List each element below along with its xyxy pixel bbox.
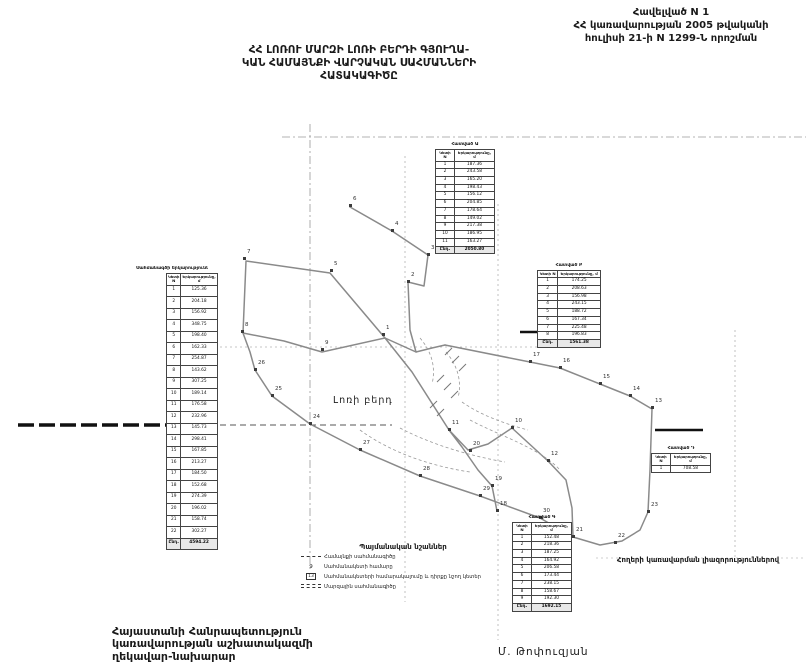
boundary-point-marker xyxy=(391,229,394,232)
table-row: 11176.58 xyxy=(167,400,218,412)
coordinate-table: Կետի NԵրկարությունը, մ1125.362204.183156… xyxy=(166,273,218,550)
boundary-point-number: 12 xyxy=(551,452,558,458)
table-cell: 7 xyxy=(538,324,558,332)
boundary-point-marker xyxy=(479,494,482,497)
boundary-point-number: 25 xyxy=(275,387,282,393)
boundary-point-marker xyxy=(614,541,617,544)
table-row: 3165.20 xyxy=(436,177,495,185)
table-row: 2218.36 xyxy=(513,542,572,550)
table-row: 16213.27 xyxy=(167,458,218,470)
table-row: 10186.95 xyxy=(436,231,495,239)
table-row: 6204.85 xyxy=(436,200,495,208)
table-row: 8143.62 xyxy=(167,366,218,378)
table-cell: 11 xyxy=(436,238,455,246)
table-cell: 254.87 xyxy=(181,354,217,366)
table-cell: 218.36 xyxy=(531,542,571,550)
length-table-left: Սահմանագծի երկարություններըԿետի NԵրկարու… xyxy=(136,266,208,550)
table-cell: 3 xyxy=(436,177,455,185)
boundary-point-number: 5 xyxy=(334,262,338,268)
table-cell: 8 xyxy=(167,366,181,378)
table-row: 1174.25 xyxy=(538,278,601,286)
legend-item-region-line: Մարզային սահմանագիծը xyxy=(298,584,508,590)
table-header-cell: Կետի N xyxy=(167,274,181,286)
table-cell: 22 xyxy=(167,527,181,539)
boundary-point-number: 22 xyxy=(618,534,625,540)
signature-line-2: կառավարության աշխատակազմի xyxy=(112,638,313,650)
table-cell: 2 xyxy=(538,286,558,294)
boundary-point-number: 10 xyxy=(515,419,522,425)
title-line-1: ՀՀ ԼՈՌՈՒ ՄԱՐԶԻ ԼՈՌԻ ԲԵՐԴԻ ԳՅՈՒՂԱ- xyxy=(228,44,490,57)
table-row: 5156.12 xyxy=(436,192,495,200)
boundary-point-marker xyxy=(407,280,410,283)
table-row: 11163.27 xyxy=(436,238,495,246)
table-cell: 5 xyxy=(167,331,181,343)
table-cell: 6 xyxy=(436,200,455,208)
table-cell: 1 xyxy=(513,534,532,542)
appendix-line-2: ՀՀ կառավարության 2005 թվականի xyxy=(540,19,802,32)
table-cell: 1 xyxy=(538,278,558,286)
table-header-cell: Երկարությունը, մ xyxy=(558,271,601,278)
table-cell: 189.14 xyxy=(181,389,217,401)
table-cell: 6 xyxy=(513,573,532,581)
table-row: 6167.34 xyxy=(538,316,601,324)
coordinate-table: Կետի NԵրկարությունը, մ1174.252208.633156… xyxy=(537,270,601,348)
table-row: 13145.73 xyxy=(167,423,218,435)
boundary-point-marker xyxy=(469,449,472,452)
boundary-point-marker xyxy=(254,368,257,371)
table-row: 4243.15 xyxy=(538,301,601,309)
table-cell: 184.50 xyxy=(181,469,217,481)
boundary-point-marker xyxy=(629,394,632,397)
table-cell: 2 xyxy=(167,297,181,309)
table-header-cell: Կետի N xyxy=(436,150,455,162)
table-row: 2243.58 xyxy=(436,169,495,177)
signature-line-3: ղեկավար-նախարար xyxy=(112,651,313,663)
boundary-point-number: 9 xyxy=(325,341,329,347)
boundary-point-marker xyxy=(647,510,650,513)
table-cell: 206.58 xyxy=(531,565,571,573)
table-cell: 198.40 xyxy=(181,331,217,343)
table-cell: 187.36 xyxy=(454,161,494,169)
region-line-icon xyxy=(298,584,324,590)
table-cell: 2 xyxy=(513,542,532,550)
legend-item-point-number: 9 Սահմանակետի համարը xyxy=(298,564,508,570)
right-note: Հողերի կառավարման լիազորություններով xyxy=(592,556,804,564)
table-row: 9217.38 xyxy=(436,223,495,231)
legend-item-label: Սահմանակետի համարը xyxy=(324,564,393,570)
table-header-cell: Կետի N xyxy=(538,271,558,278)
boundary-point-marker xyxy=(547,459,550,462)
table-row: 15167.85 xyxy=(167,446,218,458)
boundary-point-number: 8 xyxy=(245,323,249,329)
length-table-top: Հատված ԱԿետի NԵրկարությունը, մ1187.36224… xyxy=(432,142,498,254)
table-row: 1187.36 xyxy=(436,161,495,169)
table-cell: 9 xyxy=(167,377,181,389)
table-row: 7238.15 xyxy=(513,580,572,588)
boundary-point-number: 16 xyxy=(563,359,570,365)
table-title: Հատված Բ xyxy=(534,263,604,268)
table-row: 3187.25 xyxy=(513,550,572,558)
table-cell: 164.92 xyxy=(531,557,571,565)
boundary-point-number: 24 xyxy=(313,415,320,421)
table-cell: 18 xyxy=(167,481,181,493)
table-cell: 152.48 xyxy=(531,534,571,542)
table-cell: 163.27 xyxy=(454,238,494,246)
table-cell: 5 xyxy=(538,309,558,317)
table-cell: 7 xyxy=(167,354,181,366)
table-header-cell: Երկարությունը, մ xyxy=(531,523,571,535)
table-cell: 11 xyxy=(167,400,181,412)
table-row: 20196.02 xyxy=(167,504,218,516)
table-header-cell: Կետի N xyxy=(652,454,671,466)
boundary-point-number: 21 xyxy=(576,528,583,534)
legend-item-label: Սահմանակետերի համարակալումը և դիրքը նշող… xyxy=(324,574,481,580)
table-cell: 167.85 xyxy=(181,446,217,458)
table-row: 4164.92 xyxy=(513,557,572,565)
boundary-point-marker xyxy=(448,428,451,431)
table-row: 19274.39 xyxy=(167,492,218,504)
table-header-cell: Կետի N xyxy=(513,523,532,535)
table-cell: 14 xyxy=(167,435,181,447)
table-row: 18152.68 xyxy=(167,481,218,493)
table-cell: 176.58 xyxy=(181,400,217,412)
table-cell: 149.02 xyxy=(454,215,494,223)
table-total-cell: 1692.15 xyxy=(531,604,571,612)
legend-item-boundary: Համայնքի սահմանագիծը xyxy=(298,554,508,560)
table-cell: 167.34 xyxy=(558,316,601,324)
table-title: Հատված Ա xyxy=(432,142,498,147)
table-total-cell: 1561.38 xyxy=(558,340,601,348)
table-cell: 19 xyxy=(167,492,181,504)
scanned-map-document: { "appendix": { "line1": "Հավելված N 1",… xyxy=(0,0,806,665)
boundary-point-marker xyxy=(349,204,352,207)
table-row: 6162.33 xyxy=(167,343,218,355)
table-cell: 9 xyxy=(513,596,532,604)
boundary-point-number: 1 xyxy=(386,326,390,332)
boundary-point-marker xyxy=(651,406,654,409)
table-total-cell: Ընդ. xyxy=(513,604,532,612)
boundary-point-marker xyxy=(330,269,333,272)
length-table-small: Հատված ԴԿետի NԵրկարությունը, մ1708.58 xyxy=(648,446,714,473)
table-cell: 2 xyxy=(436,169,455,177)
table-cell: 178.64 xyxy=(454,207,494,215)
table-cell: 217.38 xyxy=(454,223,494,231)
table-total-cell: Ընդ. xyxy=(167,538,181,550)
table-cell: 162.33 xyxy=(181,343,217,355)
table-cell: 238.15 xyxy=(531,580,571,588)
table-cell: 213.27 xyxy=(181,458,217,470)
table-total-row: Ընդ.2050.80 xyxy=(436,246,495,254)
table-row: 22302.27 xyxy=(167,527,218,539)
table-cell: 225.48 xyxy=(558,324,601,332)
table-row: 3156.98 xyxy=(538,293,601,301)
boundary-point-number: 23 xyxy=(651,503,658,509)
table-cell: 10 xyxy=(167,389,181,401)
point-number-icon: 9 xyxy=(298,564,324,570)
table-cell: 158.74 xyxy=(181,515,217,527)
table-cell: 348.75 xyxy=(181,320,217,332)
table-row: 17184.50 xyxy=(167,469,218,481)
legend-item-label: Համայնքի սահմանագիծը xyxy=(324,554,396,560)
table-title: Հատված Գ xyxy=(508,515,576,520)
table-cell: 9 xyxy=(436,223,455,231)
table-cell: 156.98 xyxy=(558,293,601,301)
boundary-point-number: 4 xyxy=(395,222,399,228)
legend-item-point-box: 13 Սահմանակետերի համարակալումը և դիրքը ն… xyxy=(298,573,508,580)
table-total-row: Ընդ.1561.38 xyxy=(538,340,601,348)
table-cell: 198.43 xyxy=(454,184,494,192)
table-row: 4198.43 xyxy=(436,184,495,192)
table-cell: 143.62 xyxy=(181,366,217,378)
boundary-point-number: 27 xyxy=(363,441,370,447)
table-row: 8196.83 xyxy=(538,332,601,340)
table-row: 9307.25 xyxy=(167,377,218,389)
table-row: 12232.96 xyxy=(167,412,218,424)
table-row: 10189.14 xyxy=(167,389,218,401)
table-row: 6173.44 xyxy=(513,573,572,581)
table-cell: 16 xyxy=(167,458,181,470)
boundary-point-marker xyxy=(511,426,514,429)
length-table-bottom: Հատված ԳԿետի NԵրկարությունը, մ1152.48221… xyxy=(508,515,576,612)
length-table-right: Հատված ԲԿետի NԵրկարությունը, մ1174.25220… xyxy=(534,263,604,348)
table-row: 2208.63 xyxy=(538,286,601,294)
table-total-cell: 4594.22 xyxy=(181,538,217,550)
table-row: 9192.30 xyxy=(513,596,572,604)
table-title: Սահմանագծի երկարությունները xyxy=(136,266,208,271)
boundary-point-marker xyxy=(382,333,385,336)
boundary-point-number: 30 xyxy=(543,509,550,515)
boundary-point-number: 18 xyxy=(500,502,507,508)
table-cell: 10 xyxy=(436,231,455,239)
table-cell: 232.96 xyxy=(181,412,217,424)
coordinate-table: Կետի NԵրկարությունը, մ1708.58 xyxy=(651,453,711,473)
boundary-point-marker xyxy=(243,257,246,260)
table-total-cell: Ընդ. xyxy=(538,340,558,348)
legend: Պայմանական նշաններ Համայնքի սահմանագիծը … xyxy=(298,543,508,593)
boundary-point-number: 20 xyxy=(473,442,480,448)
boundary-point-marker xyxy=(359,448,362,451)
table-cell: 3 xyxy=(513,550,532,558)
boundary-point-marker xyxy=(491,484,494,487)
table-cell: 4 xyxy=(513,557,532,565)
table-row: 5188.72 xyxy=(538,309,601,317)
table-cell: 187.25 xyxy=(531,550,571,558)
boundary-point-marker xyxy=(496,509,499,512)
table-row: 4348.75 xyxy=(167,320,218,332)
table-row: 7178.64 xyxy=(436,207,495,215)
table-cell: 192.30 xyxy=(531,596,571,604)
table-cell: 6 xyxy=(167,343,181,355)
table-row: 3156.92 xyxy=(167,308,218,320)
boundary-point-marker xyxy=(321,348,324,351)
boundary-point-number: 19 xyxy=(495,477,502,483)
title-line-2: ԿԱՆ ՀԱՄԱՅՆՔԻ ՎԱՐՉԱԿԱՆ ՍԱՀՄԱՆՆԵՐԻ xyxy=(228,57,490,70)
boundary-point-number: 13 xyxy=(655,399,662,405)
table-total-cell: 2050.80 xyxy=(454,246,494,254)
table-cell: 1 xyxy=(167,285,181,297)
table-cell: 17 xyxy=(167,469,181,481)
table-cell: 708.58 xyxy=(670,465,710,473)
boundary-point-marker xyxy=(271,394,274,397)
table-cell: 7 xyxy=(513,580,532,588)
title-line-3: ՀԱՏԱԿԱԳԻԾԸ xyxy=(228,70,490,83)
boundary-point-marker xyxy=(559,366,562,369)
table-header-cell: Երկարությունը, մ xyxy=(181,274,217,286)
boundary-point-number: 6 xyxy=(353,197,357,203)
table-cell: 1 xyxy=(652,465,671,473)
signature-left-block: Հայաստանի Հանրապետություն կառավարության … xyxy=(112,626,313,663)
table-row: 5206.58 xyxy=(513,565,572,573)
appendix-line-3: հուլիսի 21-ի N 1299-Ն որոշման xyxy=(540,32,802,45)
legend-item-label: Մարզային սահմանագիծը xyxy=(324,584,396,590)
table-cell: 3 xyxy=(538,293,558,301)
boundary-point-marker xyxy=(419,474,422,477)
table-row: 7225.48 xyxy=(538,324,601,332)
boundary-point-number: 11 xyxy=(452,421,459,427)
coordinate-table: Կետի NԵրկարությունը, մ1187.362243.583165… xyxy=(435,149,495,254)
table-cell: 145.73 xyxy=(181,423,217,435)
coordinate-table: Կետի NԵրկարությունը, մ1152.482218.363187… xyxy=(512,522,572,612)
document-title: ՀՀ ԼՈՌՈՒ ՄԱՐԶԻ ԼՈՌԻ ԲԵՐԴԻ ԳՅՈՒՂԱ- ԿԱՆ ՀԱ… xyxy=(228,44,490,83)
table-row: 14298.41 xyxy=(167,435,218,447)
boundary-point-number: 2 xyxy=(411,273,415,279)
settlement-label: Լոռի բերդ xyxy=(333,395,393,406)
table-cell: 302.27 xyxy=(181,527,217,539)
table-row: 7254.87 xyxy=(167,354,218,366)
appendix-line-1: Հավելված N 1 xyxy=(540,6,802,19)
table-cell: 274.39 xyxy=(181,492,217,504)
point-box-icon: 13 xyxy=(298,573,324,580)
table-cell: 1 xyxy=(436,161,455,169)
boundary-point-number: 29 xyxy=(483,487,490,493)
table-row: 8158.67 xyxy=(513,588,572,596)
table-header-cell: Երկարությունը, մ xyxy=(670,454,710,466)
table-cell: 4 xyxy=(538,301,558,309)
table-total-cell: Ընդ. xyxy=(436,246,455,254)
boundary-point-marker xyxy=(599,382,602,385)
table-cell: 188.72 xyxy=(558,309,601,317)
table-cell: 125.36 xyxy=(181,285,217,297)
legend-title: Պայմանական նշաններ xyxy=(298,543,508,551)
table-cell: 165.20 xyxy=(454,177,494,185)
boundary-point-marker xyxy=(241,330,244,333)
table-cell: 298.41 xyxy=(181,435,217,447)
boundary-point-marker xyxy=(427,253,430,256)
table-cell: 13 xyxy=(167,423,181,435)
table-row: 2204.18 xyxy=(167,297,218,309)
table-cell: 3 xyxy=(167,308,181,320)
table-cell: 158.67 xyxy=(531,588,571,596)
boundary-line-icon xyxy=(298,554,324,560)
table-cell: 5 xyxy=(513,565,532,573)
table-row: 8149.02 xyxy=(436,215,495,223)
boundary-point-number: 14 xyxy=(633,387,640,393)
boundary-point-number: 26 xyxy=(258,361,265,367)
table-row: 1125.36 xyxy=(167,285,218,297)
table-cell: 156.92 xyxy=(181,308,217,320)
table-cell: 186.95 xyxy=(454,231,494,239)
table-cell: 204.18 xyxy=(181,297,217,309)
table-cell: 196.83 xyxy=(558,332,601,340)
boundary-point-number: 7 xyxy=(247,250,251,256)
boundary-point-marker xyxy=(309,422,312,425)
table-cell: 156.12 xyxy=(454,192,494,200)
appendix-reference: Հավելված N 1 ՀՀ կառավարության 2005 թվակա… xyxy=(540,6,802,45)
table-cell: 15 xyxy=(167,446,181,458)
table-cell: 173.44 xyxy=(531,573,571,581)
table-cell: 204.85 xyxy=(454,200,494,208)
table-header-cell: Երկարությունը, մ xyxy=(454,150,494,162)
table-row: 21158.74 xyxy=(167,515,218,527)
table-row: 1152.48 xyxy=(513,534,572,542)
boundary-point-number: 17 xyxy=(533,353,540,359)
boundary-point-number: 28 xyxy=(423,467,430,473)
table-row: 5198.40 xyxy=(167,331,218,343)
table-cell: 174.25 xyxy=(558,278,601,286)
table-cell: 152.68 xyxy=(181,481,217,493)
table-cell: 243.58 xyxy=(454,169,494,177)
table-cell: 20 xyxy=(167,504,181,516)
table-cell: 208.63 xyxy=(558,286,601,294)
table-cell: 7 xyxy=(436,207,455,215)
table-total-row: Ընդ.4594.22 xyxy=(167,538,218,550)
table-cell: 8 xyxy=(436,215,455,223)
table-cell: 5 xyxy=(436,192,455,200)
table-total-row: Ընդ.1692.15 xyxy=(513,604,572,612)
table-cell: 12 xyxy=(167,412,181,424)
boundary-point-marker xyxy=(529,360,532,363)
table-cell: 243.15 xyxy=(558,301,601,309)
table-row: 1708.58 xyxy=(652,465,711,473)
table-cell: 307.25 xyxy=(181,377,217,389)
table-cell: 21 xyxy=(167,515,181,527)
boundary-point-number: 15 xyxy=(603,375,610,381)
table-title: Հատված Դ xyxy=(648,446,714,451)
table-cell: 4 xyxy=(167,320,181,332)
signature-name: Մ. Թոփուզյան xyxy=(498,646,589,658)
table-cell: 8 xyxy=(513,588,532,596)
table-cell: 4 xyxy=(436,184,455,192)
table-cell: 8 xyxy=(538,332,558,340)
table-cell: 6 xyxy=(538,316,558,324)
table-cell: 196.02 xyxy=(181,504,217,516)
